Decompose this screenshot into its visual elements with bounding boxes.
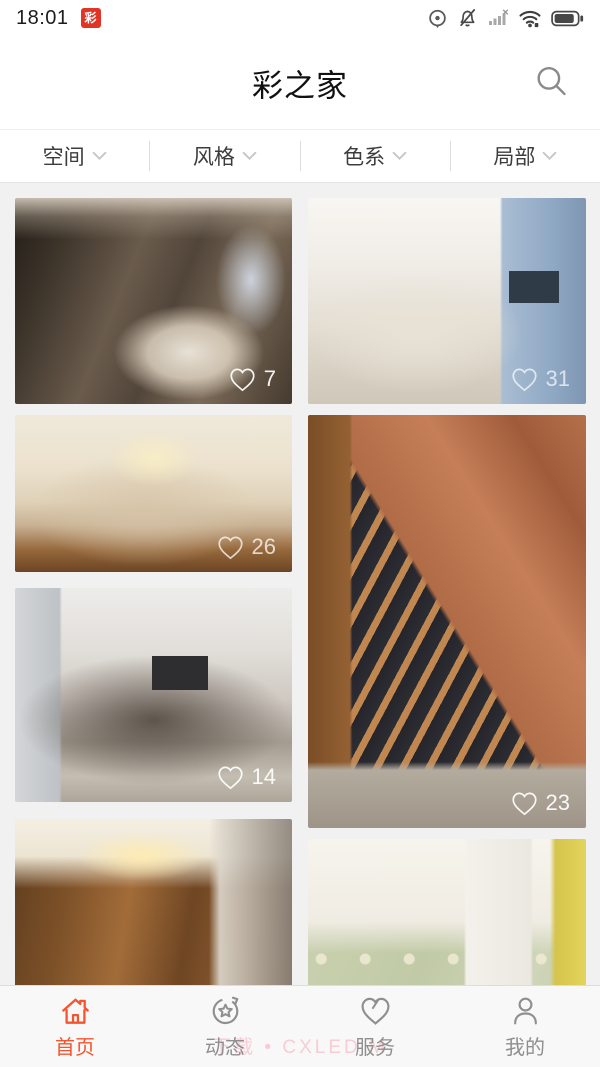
user-icon	[508, 994, 543, 1027]
design-card-dark-bathroom[interactable]: 7	[15, 198, 292, 404]
app-screen: 18:01 彩 彩之家 空间	[0, 0, 600, 1067]
bottom-nav: 下载 • CXLED M 首页 动态 服务	[0, 985, 600, 1067]
design-card-brick-staircase[interactable]: 23	[308, 415, 586, 828]
filter-label: 色系	[343, 141, 385, 171]
search-button[interactable]	[534, 63, 568, 102]
filter-bar: 空间 风格 色系 局部	[0, 130, 600, 183]
like-count-row[interactable]: 7	[229, 366, 276, 392]
filter-part[interactable]: 局部	[451, 130, 600, 182]
heart-service-icon	[358, 994, 393, 1027]
chevron-down-icon	[92, 151, 107, 161]
like-count: 26	[252, 534, 276, 560]
heart-icon	[217, 765, 244, 790]
filter-color[interactable]: 色系	[301, 130, 450, 182]
filter-label: 风格	[193, 141, 235, 171]
nav-item-profile[interactable]: 我的	[450, 986, 600, 1067]
design-card-classic-bedroom[interactable]: 26	[15, 415, 292, 572]
screen-record-icon	[427, 8, 448, 29]
clock: 18:01	[16, 7, 69, 30]
design-card-blue-living-room[interactable]: 31	[308, 198, 586, 404]
like-count-row[interactable]: 31	[511, 366, 570, 392]
home-icon	[58, 994, 93, 1027]
page-title: 彩之家	[0, 60, 600, 105]
nav-item-home[interactable]: 首页	[0, 986, 150, 1067]
wifi-icon	[518, 8, 542, 28]
status-bar: 18:01 彩	[0, 0, 600, 36]
chevron-down-icon	[542, 151, 557, 161]
nav-label: 动态	[205, 1031, 245, 1060]
chevron-down-icon	[392, 151, 407, 161]
search-icon	[534, 63, 568, 97]
design-feed: 7 31 26 23 14	[0, 183, 600, 1067]
like-count-row[interactable]: 14	[217, 764, 276, 790]
filter-label: 局部	[493, 141, 535, 171]
status-icons	[427, 8, 584, 29]
like-count: 31	[546, 366, 570, 392]
heart-icon	[511, 367, 538, 392]
filter-space[interactable]: 空间	[0, 130, 149, 182]
heart-icon	[217, 535, 244, 560]
like-count: 14	[252, 764, 276, 790]
heart-icon	[511, 791, 538, 816]
nav-item-moments[interactable]: 动态	[150, 986, 300, 1067]
like-count: 7	[264, 366, 276, 392]
chevron-down-icon	[242, 151, 257, 161]
like-count: 23	[546, 790, 570, 816]
filter-style[interactable]: 风格	[150, 130, 299, 182]
battery-icon	[551, 10, 584, 27]
filter-label: 空间	[43, 141, 85, 171]
refresh-star-icon	[208, 994, 243, 1027]
design-card-gray-living-room[interactable]: 14	[15, 588, 292, 802]
app-header: 彩之家	[0, 36, 600, 130]
mute-bell-icon	[457, 8, 478, 29]
nav-label: 我的	[505, 1031, 545, 1060]
nav-label: 首页	[55, 1031, 95, 1060]
signal-strength-icon	[487, 9, 509, 28]
app-notification-badge-icon: 彩	[81, 8, 101, 28]
like-count-row[interactable]: 23	[511, 790, 570, 816]
nav-item-services[interactable]: 服务	[300, 986, 450, 1067]
nav-label: 服务	[355, 1031, 395, 1060]
like-count-row[interactable]: 26	[217, 534, 276, 560]
heart-icon	[229, 367, 256, 392]
